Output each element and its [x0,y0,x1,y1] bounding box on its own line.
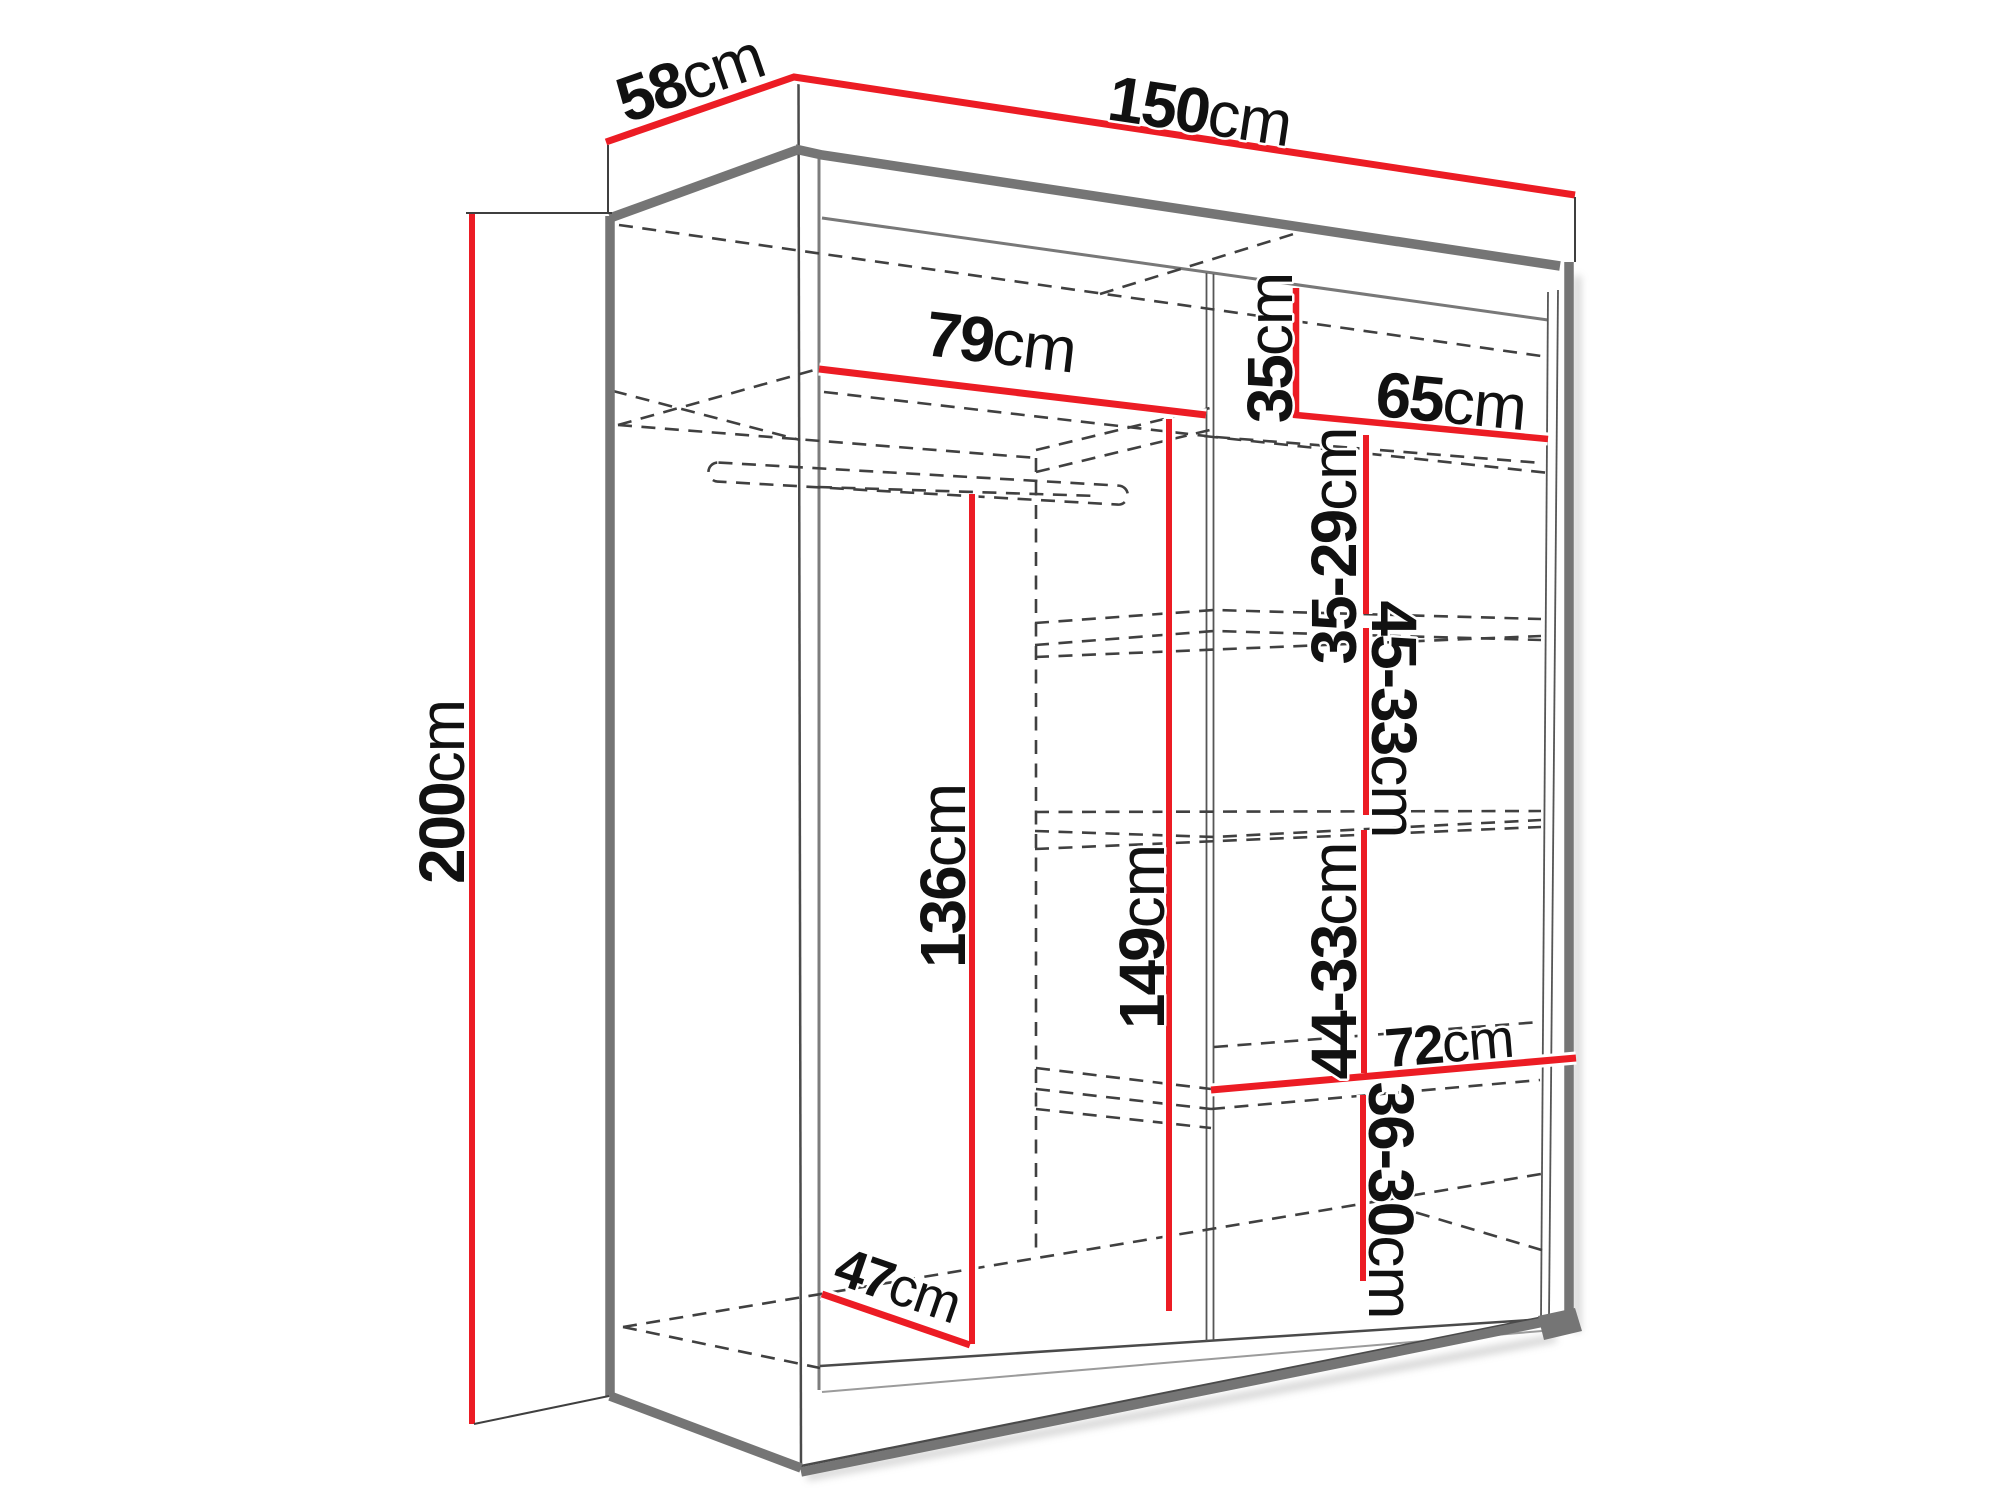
svg-text:72cm: 72cm [1382,1007,1515,1080]
svg-text:200cm: 200cm [406,700,478,884]
svg-text:65cm: 65cm [1373,358,1530,444]
svg-text:36-30cm: 36-30cm [1355,1082,1427,1319]
svg-text:45-33cm: 45-33cm [1358,601,1430,838]
svg-text:136cm: 136cm [907,784,979,968]
svg-text:44-33cm: 44-33cm [1298,843,1370,1080]
svg-text:149cm: 149cm [1106,845,1178,1029]
svg-text:35cm: 35cm [1234,273,1306,424]
